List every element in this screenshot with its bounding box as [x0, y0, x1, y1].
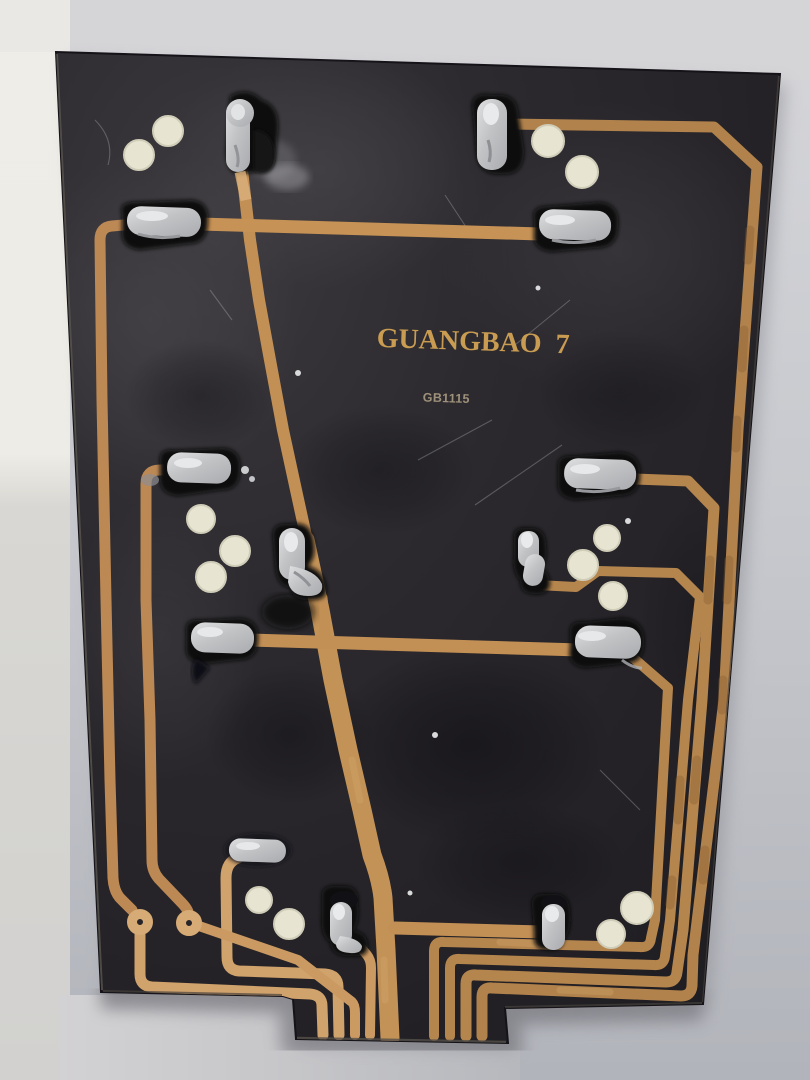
svg-text:GUANGBAO 7: GUANGBAO 7 [376, 323, 570, 360]
svg-text:GB1115: GB1115 [423, 390, 470, 406]
